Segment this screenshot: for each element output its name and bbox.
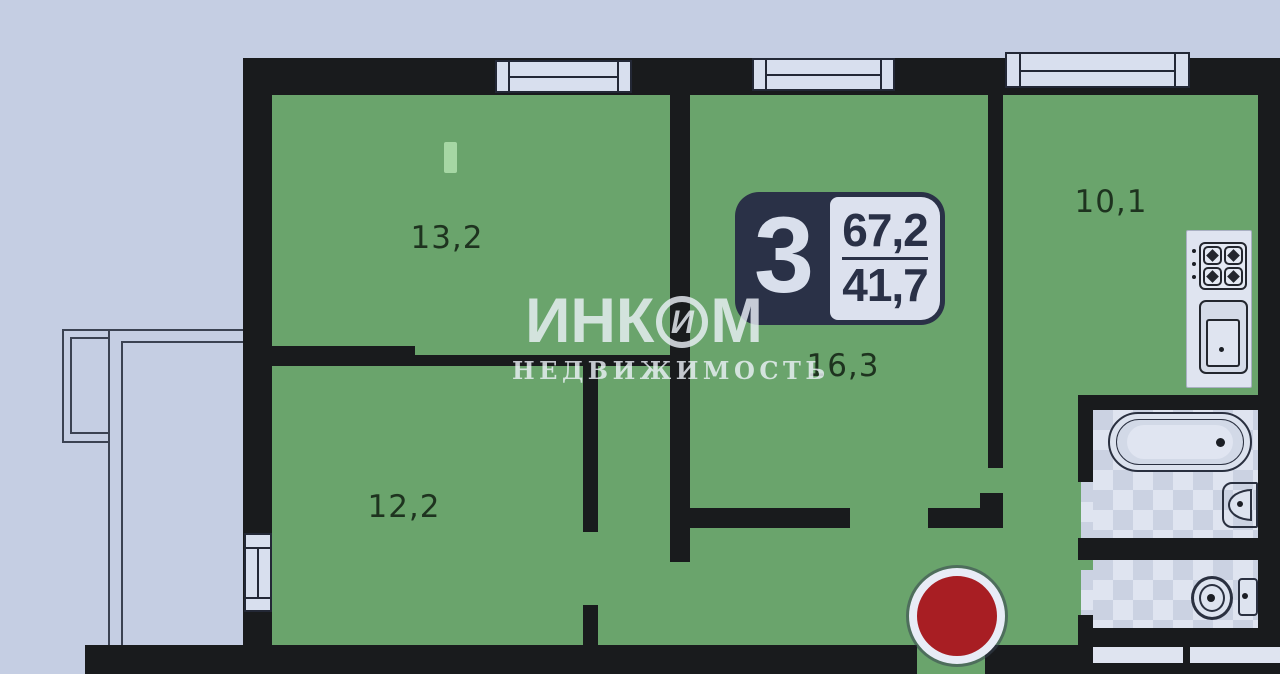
wall-bathroom-left-upper [1078,410,1093,482]
bathtub-drain-dot [1216,438,1225,447]
floor-plan: 13,2 12,2 16,3 10,1 3 67,2 41,7 ИНК И М … [0,0,1280,674]
wall-between-13-2-and-12-2 [272,346,415,366]
badge-area-panel: 67,2 41,7 [830,197,940,320]
toilet-tank [1238,578,1258,616]
room-label-12-2: 12,2 [367,489,440,525]
window-kitchen [1005,52,1190,88]
toilet-drain-dot [1207,594,1215,602]
highlight-mark [444,142,457,173]
wall-16-3-kitchen [988,95,1003,468]
wall-toilet-left-lower [1078,615,1093,628]
wall-bathroom-top [1078,395,1280,410]
balcony-inner-rail [121,341,245,645]
badge-total-area: 67,2 [842,205,928,257]
wall-kitchen-corner-notch [980,493,1003,528]
entry-landing-divider [1183,647,1190,663]
fridge-handle-dot [1219,347,1224,352]
wall-right-exterior [1258,58,1280,674]
watermark: ИНК И М НЕДВИЖИМОСТЬ [512,290,776,385]
stove-knob-dot [1192,249,1196,253]
toilet-door-opening [1081,570,1093,615]
brand-subtitle: НЕДВИЖИМОСТЬ [512,356,776,385]
wall-bath-toilet-divider [1078,538,1258,560]
fridge-door [1206,319,1240,367]
room-label-10-1: 10,1 [1074,184,1147,220]
brand-circle-letter: И [671,306,694,338]
brand-circle-icon: И [656,296,708,348]
wall-12-2-right-stub [583,605,598,645]
stove-knob-dot [1192,262,1196,266]
toilet-tank-dot [1242,593,1248,599]
window-room-12-2-balcony [244,533,272,612]
location-marker-dot [909,568,1005,664]
balcony-box-inner-rail [70,337,110,434]
brand-text-right: М [710,290,762,353]
stove-knob-dot [1192,275,1196,279]
brand-text-left: ИНК [525,290,654,353]
window-room-13-2 [495,60,632,93]
washbasin-faucet-dot [1237,501,1243,507]
toilet-tile-floor [1093,560,1258,628]
badge-living-area: 41,7 [842,260,928,312]
wall-toilet-bottom [1078,628,1280,645]
wall-bottom-exterior-left [85,645,917,674]
window-room-16-3 [752,58,895,91]
room-label-13-2: 13,2 [410,220,483,256]
stove-icon [1199,242,1247,290]
wall-16-3-bottom-left [672,508,850,528]
bathroom-door-opening [1081,482,1093,538]
brand-logo: ИНК И М [512,290,776,353]
